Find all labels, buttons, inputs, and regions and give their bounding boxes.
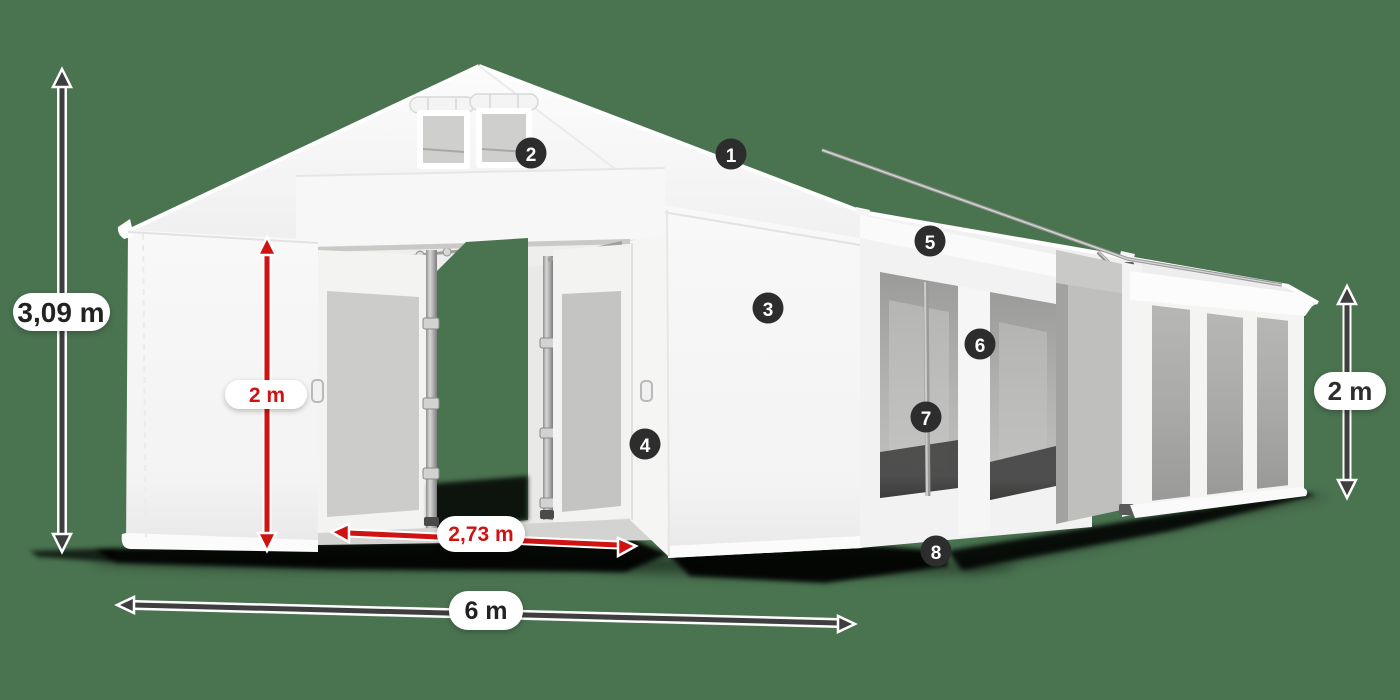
- svg-text:8: 8: [931, 543, 942, 564]
- svg-text:4: 4: [640, 436, 651, 457]
- svg-text:3: 3: [763, 300, 774, 321]
- svg-text:6 m: 6 m: [464, 597, 507, 625]
- svg-text:2 m: 2 m: [249, 384, 285, 407]
- svg-text:7: 7: [921, 409, 932, 430]
- svg-text:6: 6: [975, 336, 986, 357]
- svg-text:3,09 m: 3,09 m: [17, 297, 104, 328]
- svg-text:2: 2: [526, 145, 537, 166]
- svg-text:2 m: 2 m: [1328, 376, 1373, 406]
- svg-text:5: 5: [925, 233, 936, 254]
- svg-text:2,73 m: 2,73 m: [448, 523, 513, 546]
- svg-text:1: 1: [726, 146, 737, 167]
